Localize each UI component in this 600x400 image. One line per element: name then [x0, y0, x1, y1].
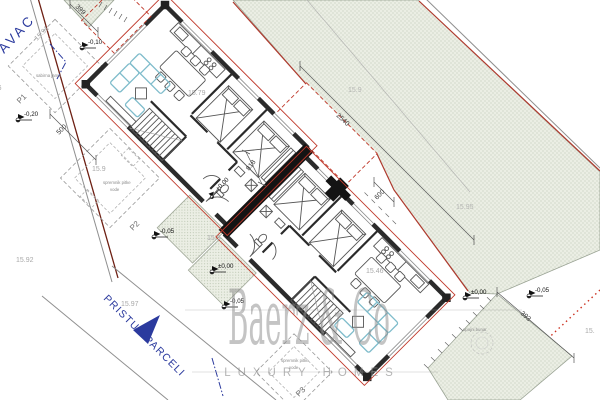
parcel-p2-label: P2: [128, 219, 142, 233]
spot-height: 15.92: [16, 257, 34, 264]
site-plan-drawing: 399 500 2540 818 600 393 -0,10 -0,20 -0,…: [0, 0, 600, 400]
street-name-label: AVAC: [0, 12, 38, 56]
watermark-tagline: LUXURY HOMES: [224, 367, 400, 379]
spot-height: 15.79: [188, 90, 206, 97]
level-value: ±0,00: [471, 289, 487, 296]
spot-height: 15.9: [348, 87, 362, 94]
spot-height: 15.9: [92, 166, 106, 173]
level-value: -0,05: [160, 228, 175, 235]
water-tank-1-label: spremnik pitke: [103, 180, 131, 185]
floor-plan-canvas: 399 500 2540 818 600 393 -0,10 -0,20 -0,…: [0, 0, 600, 400]
dim-600: 600: [373, 188, 386, 201]
watermark-brand: Baerz & Co: [228, 273, 390, 362]
spot-height: 15.86: [0, 85, 2, 92]
spot-height: 15.95: [456, 204, 474, 211]
utility-line-blue: [212, 358, 223, 396]
level-value: -0,10: [88, 39, 103, 46]
soakaway-label: upojni bunar: [463, 327, 487, 332]
parcel-p1-label: P1: [15, 92, 29, 106]
spot-height: 15.9: [207, 235, 221, 242]
spot-height: 15.: [585, 328, 595, 335]
sabirna-jama-label: sabirna jama: [36, 73, 61, 78]
water-tank-1-label2: vode: [110, 187, 120, 192]
street-boundary-line: [38, 0, 118, 278]
parcel-p3-label: P3: [294, 385, 308, 399]
level-value: ±0,00: [218, 263, 234, 270]
level-value: -0,20: [24, 111, 39, 118]
level-value: -0,05: [535, 287, 550, 294]
